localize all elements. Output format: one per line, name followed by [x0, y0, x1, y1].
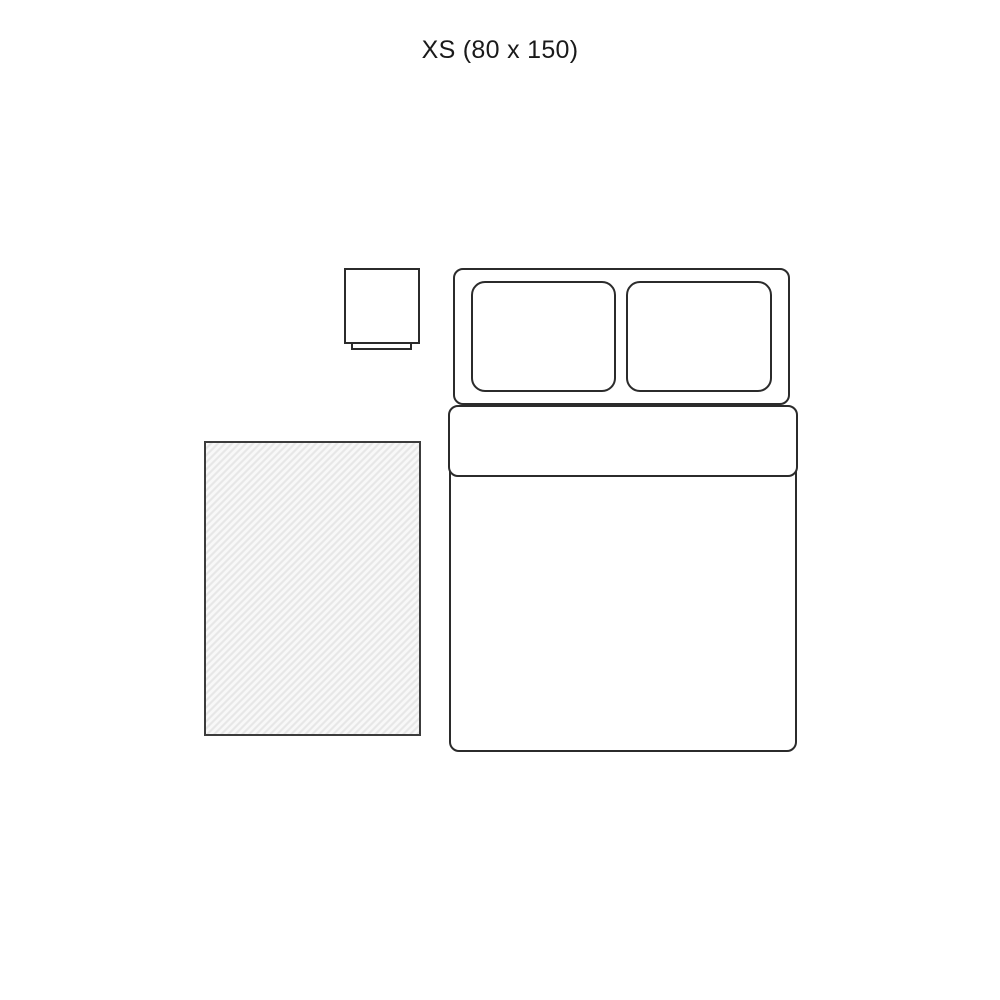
pillow-right	[627, 282, 771, 391]
pillow-left	[472, 282, 615, 391]
bedroom-top-view-diagram	[0, 0, 1000, 1000]
rug	[205, 442, 420, 735]
rug-size-guide: XS (80 x 150)	[0, 0, 1000, 1000]
nightstand-top	[345, 269, 419, 343]
nightstand	[345, 269, 419, 349]
rug-area	[205, 442, 420, 735]
bed-duvet	[450, 440, 796, 751]
duvet-fold	[449, 406, 797, 476]
bed	[449, 269, 797, 751]
